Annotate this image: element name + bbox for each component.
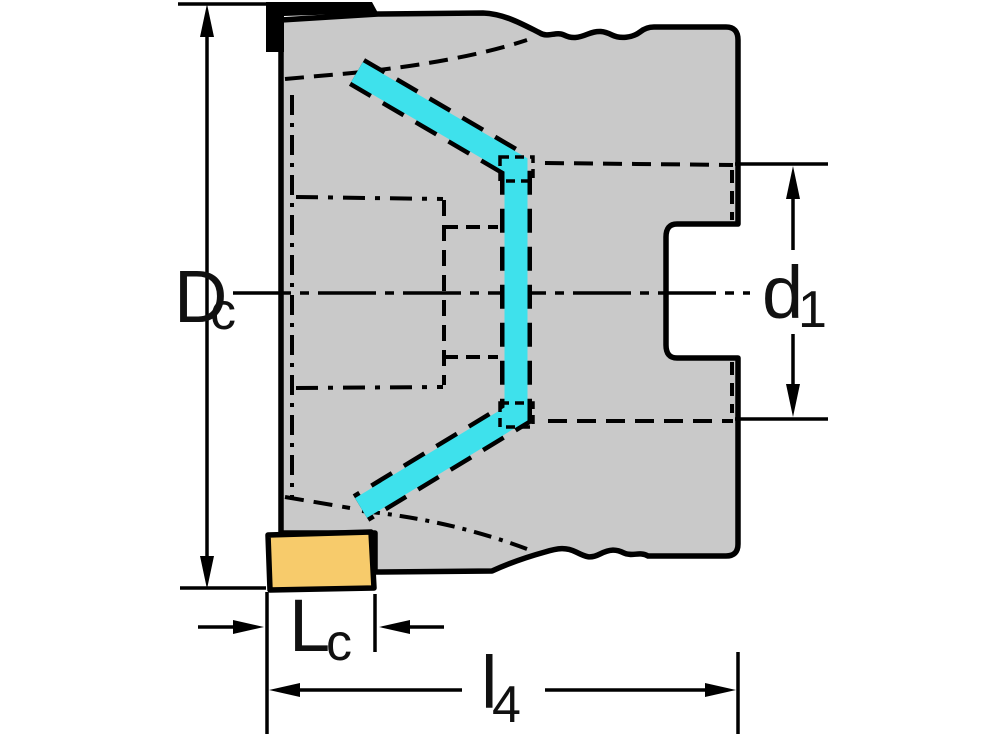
l4-arrow-left <box>269 683 300 697</box>
d1-arrow-down <box>786 384 800 417</box>
l4-label-sub: 4 <box>492 676 521 734</box>
d1-label-main: d <box>762 251 803 334</box>
technical-drawing-canvas: D c d 1 L c l 4 <box>0 0 1000 736</box>
lc-arrow-left <box>233 620 264 634</box>
lc-label-main: L <box>289 584 330 667</box>
dc-arrow-up <box>200 4 214 37</box>
d1-arrow-up <box>786 166 800 199</box>
d1-label-sub: 1 <box>798 281 827 339</box>
lc-label-sub: c <box>326 614 352 672</box>
bottom-insert <box>268 532 374 590</box>
lc-arrow-right <box>379 620 410 634</box>
l4-arrow-right <box>705 683 736 697</box>
dc-arrow-down <box>200 556 214 589</box>
dc-label-sub: c <box>210 283 236 341</box>
milling-cutter-diagram: D c d 1 L c l 4 <box>0 0 1000 736</box>
